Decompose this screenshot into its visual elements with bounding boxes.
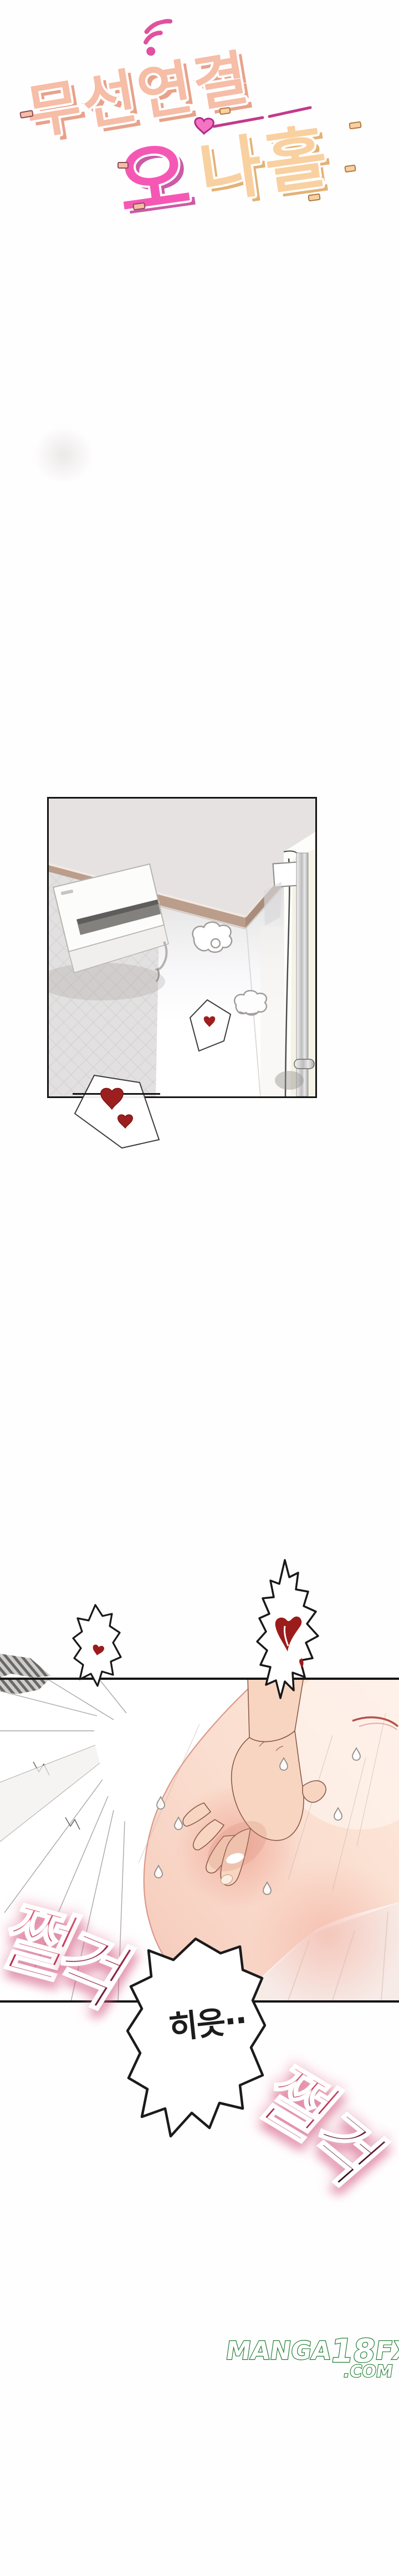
cloud-doodle <box>193 922 232 952</box>
gray-photo-corner-inner <box>0 1680 49 1694</box>
logo-deco-dash <box>117 162 129 169</box>
watermark-line2: .COM <box>222 2364 393 2380</box>
gray-photo-corner <box>0 1652 55 1678</box>
logo-deco-dash <box>349 121 361 130</box>
room-panel-art <box>49 799 315 1096</box>
site-watermark: MANGA18FX .COM <box>222 2336 397 2380</box>
webtoon-page: 무선연결 오 나홀 <box>0 0 399 2576</box>
room-panel <box>47 797 317 1098</box>
door-hinge <box>273 862 300 887</box>
logo-deco-dash <box>344 165 356 173</box>
splash-heart-right <box>256 1558 323 1700</box>
splash-heart-left <box>72 1604 123 1688</box>
paper-hearts <box>100 1086 139 1130</box>
door-knob <box>294 1059 314 1069</box>
faint-ink-smudge <box>22 415 105 495</box>
cloud-doodle <box>234 990 267 1015</box>
watermark-part1: MANGA <box>224 2336 332 2365</box>
knob-shadow <box>275 1071 304 1090</box>
heart-paper-wall <box>190 1000 231 1051</box>
watermark-part3: FX <box>374 2336 399 2365</box>
logo-title-line2-first: 오 <box>110 113 196 234</box>
